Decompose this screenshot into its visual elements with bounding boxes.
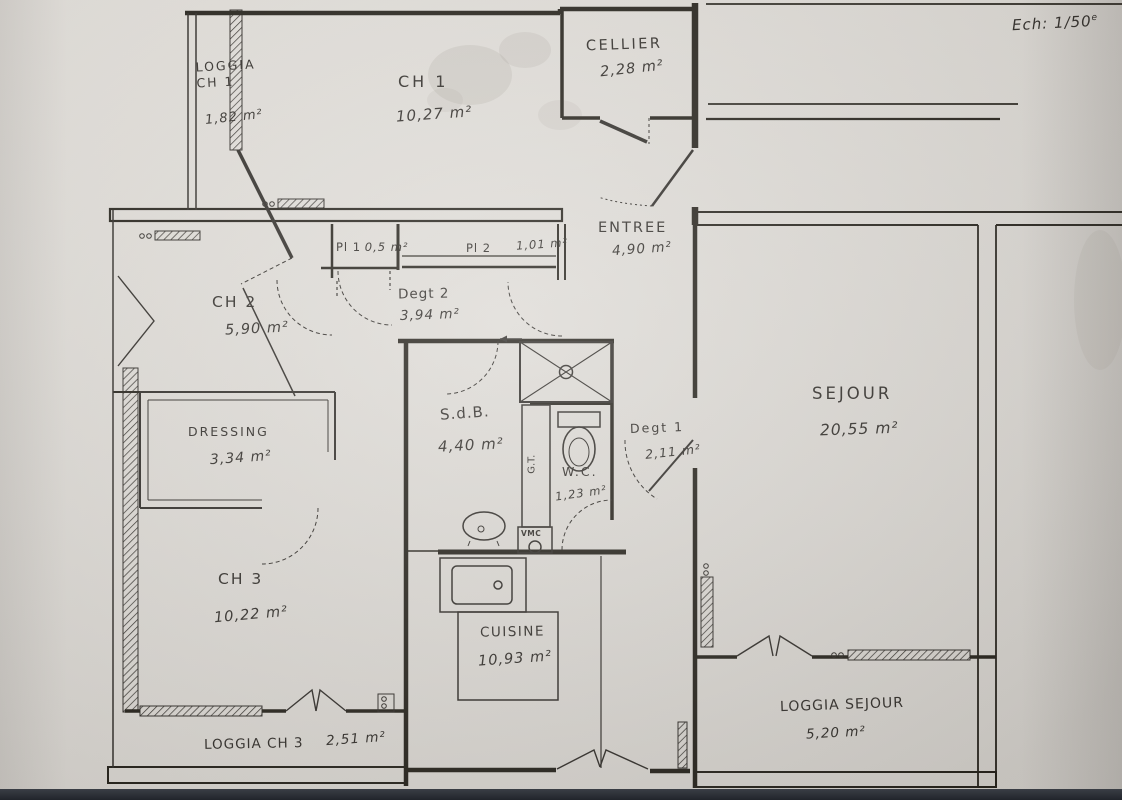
label-loggia-ch1: LOGGIA CH 1: [195, 56, 257, 90]
area-ch3: 10,22 m²: [213, 603, 288, 628]
label-cuisine: CUISINE: [480, 623, 545, 641]
scale-superscript: e: [1091, 13, 1098, 23]
area-cuisine: 10,93 m²: [477, 647, 552, 670]
floorplan-page: LOGGIA CH 1 1,82 m² CH 1 10,27 m² CELLIE…: [0, 0, 1122, 800]
area-loggia-sejour: 5,20 m²: [806, 723, 867, 743]
label-ch3: CH 3: [218, 570, 263, 589]
vmc-label: VMC: [521, 529, 541, 538]
label-wc: W.C.: [562, 464, 598, 480]
label-sejour: SEJOUR: [812, 384, 892, 405]
label-loggia-ch3: LOGGIA CH 3: [204, 735, 304, 754]
area-ch1: 10,27 m²: [395, 102, 472, 126]
area-wc: 1,23 m²: [554, 482, 608, 503]
area-entree: 4,90 m²: [611, 239, 672, 260]
area-pl2: 1,01 m²: [516, 235, 569, 253]
area-loggia-ch3: 2,51 m²: [325, 729, 386, 750]
area-degt1: 2,11 m²: [644, 441, 701, 462]
label-loggia-sejour: LOGGIA SEJOUR: [780, 695, 905, 717]
label-pl1: Pl 1 0,5 m²: [336, 240, 409, 254]
label-degt2: Degt 2: [398, 286, 450, 304]
area-loggia-ch1: 1,82 m²: [204, 107, 263, 129]
area-sdb: 4,40 m²: [438, 434, 505, 456]
scale-text: Ech: 1/50: [1012, 12, 1093, 34]
room-name-line2: CH 1: [196, 72, 257, 91]
label-dressing: DRESSING: [188, 424, 269, 440]
area-sejour: 20,55 m²: [820, 419, 899, 441]
room-name: LOGGIA: [195, 56, 256, 75]
area-ch2: 5,90 m²: [225, 318, 290, 339]
label-ch2: CH 2: [212, 293, 257, 312]
labels-layer: LOGGIA CH 1 1,82 m² CH 1 10,27 m² CELLIE…: [0, 0, 1122, 800]
area-cellier: 2,28 m²: [599, 57, 664, 82]
photo-table-edge: [0, 789, 1122, 800]
gt-label: G.T.: [526, 455, 539, 474]
room-name: Pl 1: [336, 240, 361, 254]
label-pl2: Pl 2: [466, 241, 491, 255]
area-dressing: 3,34 m²: [209, 448, 272, 470]
label-entree: ENTREE: [598, 219, 667, 237]
label-sdb: S.d.B.: [439, 402, 490, 424]
scale-note: Ech: 1/50e: [1012, 12, 1099, 35]
area-degt2: 3,94 m²: [400, 306, 460, 325]
label-cellier: CELLIER: [586, 35, 663, 56]
room-area: 0,5 m²: [365, 240, 409, 254]
label-degt1: Degt 1: [630, 419, 685, 437]
label-ch1: CH 1: [398, 72, 448, 92]
